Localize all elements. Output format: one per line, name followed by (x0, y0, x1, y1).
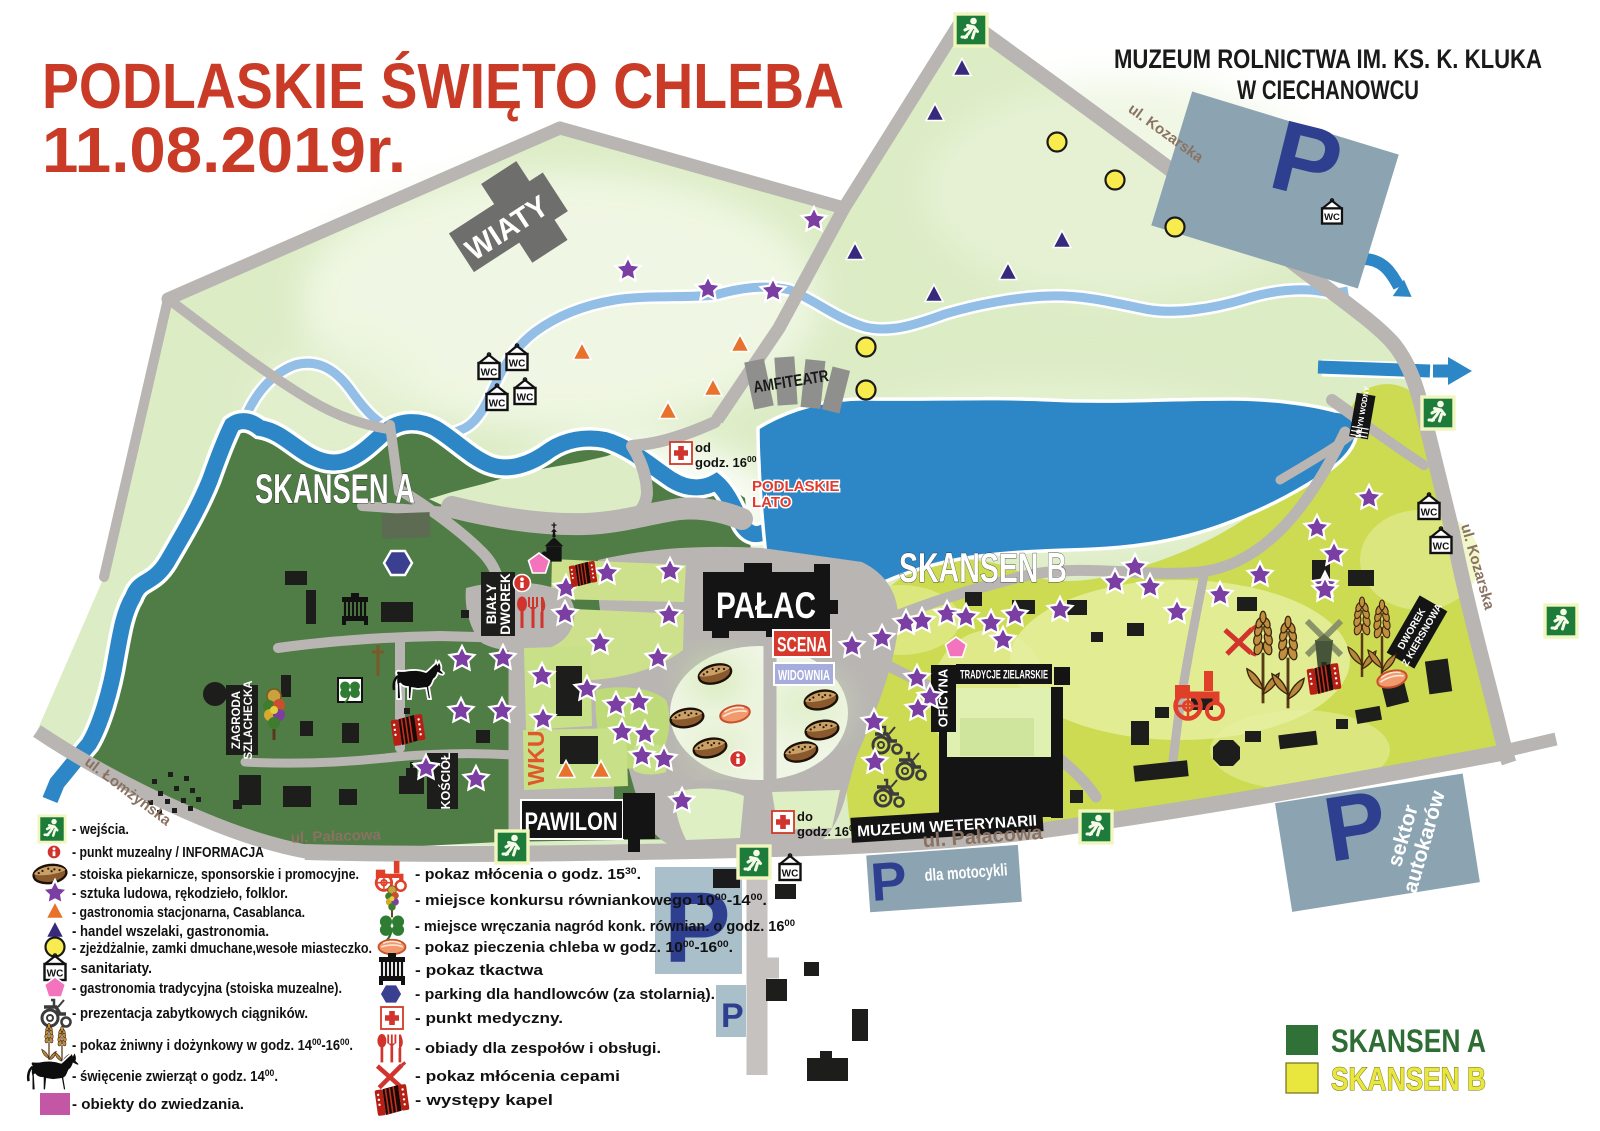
svg-text:- punkt muzealny / INFORMACJA: - punkt muzealny / INFORMACJA (72, 845, 264, 861)
svg-text:P: P (869, 851, 909, 913)
svg-text:MUZEUM ROLNICTWA IM. KS. K. KL: MUZEUM ROLNICTWA IM. KS. K. KLUKA (1114, 44, 1542, 74)
svg-text:- wejścia.: - wejścia. (72, 822, 129, 838)
svg-text:- handel wszelaki, gastronomia: - handel wszelaki, gastronomia. (72, 924, 269, 940)
svg-text:PODLASKIE ŚWIĘTO CHLEBA: PODLASKIE ŚWIĘTO CHLEBA (42, 50, 844, 122)
svg-text:do: do (797, 809, 813, 824)
svg-text:SCENA: SCENA (777, 634, 827, 657)
svg-text:- sanitariaty.: - sanitariaty. (72, 961, 152, 977)
svg-text:- punkt medyczny.: - punkt medyczny. (415, 1011, 563, 1027)
svg-text:- sztuka ludowa, rękodzieło, f: - sztuka ludowa, rękodzieło, folklor. (72, 886, 288, 902)
svg-text:od: od (695, 440, 711, 455)
svg-text:PAWILON: PAWILON (525, 808, 618, 836)
svg-text:LATO: LATO (752, 494, 792, 511)
svg-text:- występy kapel: - występy kapel (415, 1093, 553, 1109)
svg-text:PODLASKIE: PODLASKIE (752, 478, 840, 495)
svg-text:SKANSEN B: SKANSEN B (1331, 1061, 1486, 1097)
svg-text:WIDOWNIA: WIDOWNIA (778, 668, 830, 684)
svg-text:P: P (721, 997, 744, 1035)
svg-text:- miejsce konkursu równiankowe: - miejsce konkursu równiankowego 1000-14… (415, 892, 767, 909)
svg-text:TRADYCJE ZIELARSKIE: TRADYCJE ZIELARSKIE (960, 670, 1048, 682)
svg-text:- obiekty do zwiedzania.: - obiekty do zwiedzania. (72, 1097, 244, 1113)
svg-text:SKANSEN A: SKANSEN A (1331, 1023, 1486, 1059)
svg-text:- pokaz tkactwa: - pokaz tkactwa (415, 963, 544, 979)
svg-text:- stoiska piekarnicze, sponsor: - stoiska piekarnicze, sponsorskie i pro… (72, 867, 359, 883)
svg-text:ul. Pałacowa: ul. Pałacowa (291, 826, 382, 846)
svg-text:- zjeżdżalnie, zamki dmuchane,: - zjeżdżalnie, zamki dmuchane,wesołe mia… (72, 941, 372, 957)
svg-text:WKU: WKU (523, 731, 549, 786)
svg-text:- parking dla handlowców (za s: - parking dla handlowców (za stolarnią). (415, 987, 715, 1003)
svg-text:- pokaz młócenia o godz. 1530.: - pokaz młócenia o godz. 1530. (415, 866, 641, 883)
svg-text:PAŁAC: PAŁAC (716, 585, 816, 626)
svg-text:- pokaz żniwny i dożynkowy w g: - pokaz żniwny i dożynkowy w godz. 1400-… (72, 1037, 353, 1054)
svg-text:- miejsce wręczania nagród kon: - miejsce wręczania nagród konk. równian… (415, 918, 795, 935)
svg-text:- gastronomia tradycyjna (stoi: - gastronomia tradycyjna (stoiska muzeal… (72, 981, 342, 997)
svg-text:SKANSEN A: SKANSEN A (255, 465, 415, 512)
svg-text:- święcenie zwierząt o godz. 1: - święcenie zwierząt o godz. 1400. (72, 1068, 278, 1085)
svg-text:- prezentacja zabytkowych ciąg: - prezentacja zabytkowych ciągników. (72, 1006, 308, 1022)
svg-text:- pokaz młócenia cepami: - pokaz młócenia cepami (415, 1069, 620, 1085)
svg-text:ZAGRODASZLACHECKA: ZAGRODASZLACHECKA (231, 680, 255, 759)
svg-text:W CIECHANOWCU: W CIECHANOWCU (1237, 75, 1419, 105)
svg-text:KOŚCIÓŁ: KOŚCIÓŁ (438, 752, 453, 809)
svg-text:- gastronomia stacjonarna, Cas: - gastronomia stacjonarna, Casablanca. (72, 905, 305, 921)
svg-text:- obiady dla zespołów i obsług: - obiady dla zespołów i obsługi. (415, 1041, 661, 1057)
svg-text:SKANSEN B: SKANSEN B (899, 544, 1067, 591)
svg-text:11.08.2019r.: 11.08.2019r. (42, 114, 406, 186)
